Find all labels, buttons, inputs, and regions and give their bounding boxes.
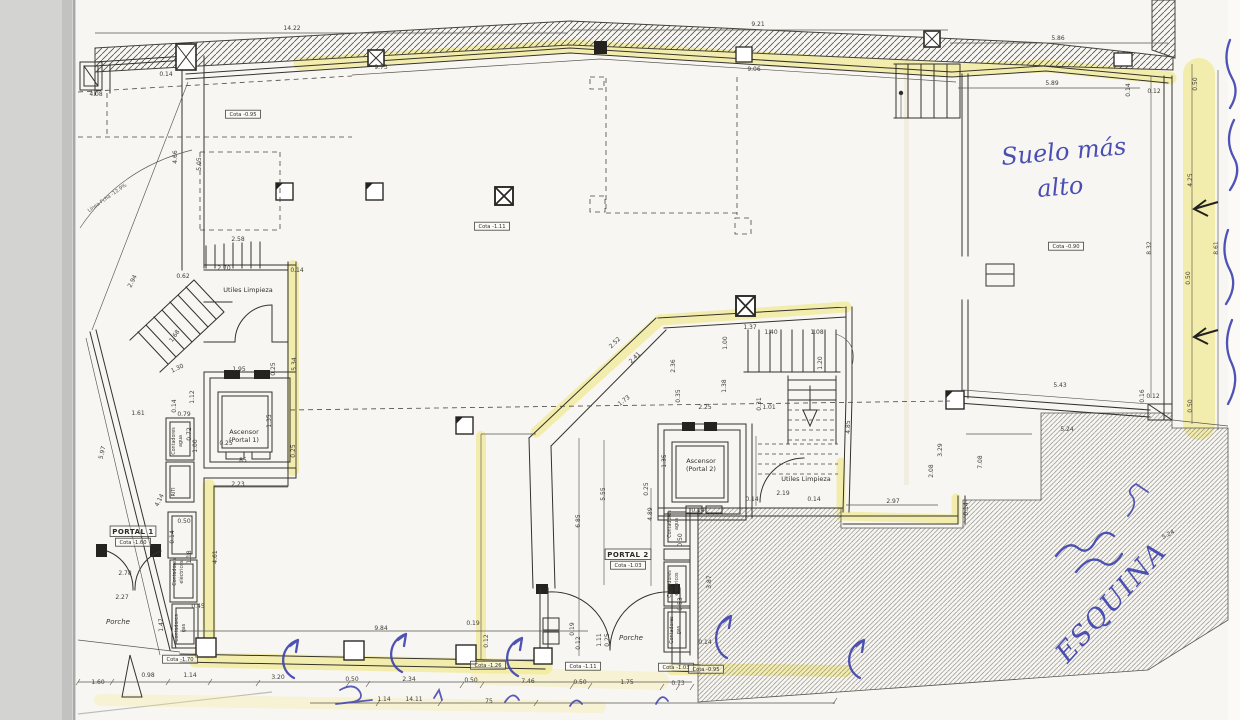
room-label: (Portal 1) bbox=[229, 436, 259, 444]
dimension-label: 0.25 bbox=[643, 482, 650, 496]
dimension-label: 4.08 bbox=[89, 91, 103, 98]
column-corner bbox=[456, 417, 473, 434]
closet-label: Contadores bbox=[667, 510, 673, 538]
dimension-label: 0.14 bbox=[963, 502, 970, 516]
dimension-label: 0.12 bbox=[575, 636, 582, 650]
dimension-label: 1.37 bbox=[743, 324, 757, 331]
dimension-label: 3.87 bbox=[706, 575, 713, 589]
dimension-label: 1.00 bbox=[192, 439, 199, 453]
dimension-label: 7.46 bbox=[521, 678, 535, 685]
dimension-label: 2.34 bbox=[402, 676, 416, 683]
column-x bbox=[736, 296, 755, 316]
cota-label: Cota -0.95 bbox=[229, 112, 256, 118]
dimension-label: 9.73 bbox=[374, 64, 388, 71]
closet-label: Contadores bbox=[171, 427, 177, 455]
column-corner bbox=[946, 391, 964, 409]
dimension-label: 0.53 bbox=[677, 597, 684, 611]
dimension-label: 1.38 bbox=[721, 379, 728, 393]
room-label: Ascensor bbox=[229, 428, 259, 436]
dimension-label: 0.16 bbox=[1139, 389, 1146, 403]
dimension-label: 9.21 bbox=[751, 21, 765, 28]
dimension-label: 0.35 bbox=[675, 389, 682, 403]
dimension-label: 1.40 bbox=[764, 329, 778, 336]
closet-label: eléctricos bbox=[673, 572, 680, 596]
closet-label: agua bbox=[179, 435, 184, 447]
dimension-label: 0.14 bbox=[807, 496, 821, 503]
dimension-label: 0.14 bbox=[159, 71, 173, 78]
dimension-label: 1.14 bbox=[377, 696, 391, 703]
dimension-label: 0.25 bbox=[290, 444, 297, 458]
dimension-label: 0.14 bbox=[691, 507, 705, 514]
cota-label: Cota -1.70 bbox=[166, 657, 193, 663]
room-label: Porche bbox=[619, 634, 643, 642]
cota-label: Cota -1.03 bbox=[662, 665, 689, 671]
closet-label: agua bbox=[675, 518, 680, 530]
dimension-label: 1.35 bbox=[266, 414, 273, 428]
column bbox=[1114, 53, 1132, 66]
dimension-label: 5.24 bbox=[1060, 426, 1074, 433]
dimension-label: 3.20 bbox=[271, 674, 285, 681]
column-x bbox=[176, 44, 196, 70]
cota-label: Cota -1.11 bbox=[569, 664, 596, 670]
room-label: Utiles Limpieza bbox=[223, 286, 272, 294]
dimension-label: 0.14 bbox=[290, 267, 304, 274]
dimension-label: 2.70 bbox=[217, 265, 231, 272]
floor-plan-svg: 14.229.215.860.144.089.739.065.890.500.1… bbox=[0, 0, 1240, 720]
dimension-label: 1.01 bbox=[762, 404, 776, 411]
dimension-label: 9.06 bbox=[747, 66, 761, 73]
dimension-label: 0.50 bbox=[345, 676, 359, 683]
closet-label: Contadores bbox=[669, 616, 675, 644]
dimension-label: 1.11 bbox=[596, 633, 603, 647]
dimension-label: 0.50 bbox=[464, 677, 478, 684]
column-solid bbox=[594, 41, 607, 54]
dimension-label: 1.75 bbox=[620, 679, 634, 686]
room-label: Ascensor bbox=[686, 457, 716, 465]
dimension-label: 0.12 bbox=[483, 634, 490, 648]
portal-label: PORTAL 1 bbox=[112, 528, 154, 536]
dimension-label: 1.14 bbox=[183, 672, 197, 679]
dimension-label: 2.97 bbox=[886, 498, 900, 505]
dimension-label: 5.43 bbox=[1053, 382, 1067, 389]
dimension-label: 0.98 bbox=[141, 672, 155, 679]
dimension-label: 8.32 bbox=[1146, 241, 1153, 255]
dimension-label: 1.60 bbox=[91, 679, 105, 686]
paper-crease bbox=[904, 55, 909, 485]
dimension-label: 5.86 bbox=[1051, 35, 1065, 42]
dimension-label: 0.12 bbox=[1146, 393, 1160, 400]
dimension-label: 75 bbox=[485, 698, 493, 705]
dimension-label: 0.14 bbox=[698, 639, 712, 646]
dimension-label: 0.50 bbox=[677, 533, 684, 547]
column-corner bbox=[276, 183, 293, 200]
dimension-label: 1.47 bbox=[158, 618, 165, 632]
dimension-label: 9.84 bbox=[374, 625, 388, 632]
column bbox=[534, 648, 552, 664]
room-label: Porche bbox=[106, 618, 130, 626]
column-corner bbox=[366, 183, 383, 200]
dimension-label: 0.79 bbox=[177, 411, 191, 418]
closet-label: eléctricos bbox=[178, 560, 185, 584]
dimension-label: 5.05 bbox=[196, 157, 203, 171]
dimension-label: 2.08 bbox=[928, 464, 935, 478]
cota-label: Cota -1.03 bbox=[614, 563, 641, 569]
dimension-label: 8.61 bbox=[1213, 241, 1220, 255]
dimension-label: 1.00 bbox=[722, 336, 729, 350]
dimension-label: 0.50 bbox=[1185, 271, 1192, 285]
handwritten-note-suelo-line2: alto bbox=[1036, 171, 1084, 203]
room-label: (Portal 2) bbox=[686, 465, 716, 473]
dimension-label: 0.62 bbox=[176, 273, 190, 280]
closet-label: gas bbox=[677, 625, 682, 634]
column bbox=[736, 47, 752, 62]
dimension-label: 85 bbox=[239, 457, 247, 464]
dimension-label: 1.61 bbox=[131, 410, 145, 417]
dimension-label: 0.50 bbox=[1192, 77, 1199, 91]
room-label: Utiles Limpieza bbox=[781, 475, 830, 483]
column-x bbox=[495, 187, 513, 205]
cota-label: Cota -1.11 bbox=[478, 224, 505, 230]
cota-label: Cota -1.26 bbox=[474, 663, 501, 669]
dimension-label: 1.12 bbox=[189, 390, 196, 404]
dimension-label: 0.50 bbox=[1187, 399, 1194, 413]
dimension-label: 6.85 bbox=[575, 514, 582, 528]
dimension-label: 1.18 bbox=[186, 550, 193, 564]
column-x bbox=[924, 31, 940, 47]
dimension-label: 5.55 bbox=[600, 487, 607, 501]
dimension-label: 1.08 bbox=[810, 329, 824, 336]
dimension-label: 4.66 bbox=[172, 150, 179, 164]
dimension-label: 0.19 bbox=[466, 620, 480, 627]
dimension-label: 5.89 bbox=[1045, 80, 1059, 87]
dimension-label: 7.08 bbox=[977, 455, 984, 469]
dimension-label: 4.61 bbox=[212, 550, 219, 564]
dimension-label: 2.19 bbox=[776, 490, 790, 497]
cota-label: Cota -0.90 bbox=[1052, 244, 1079, 250]
dimension-label: 1.35 bbox=[661, 454, 668, 468]
dimension-label: 14.11 bbox=[405, 696, 422, 703]
dimension-label: 4.89 bbox=[647, 507, 654, 521]
dimension-label: 0.14 bbox=[169, 530, 176, 544]
dimension-label: 0.14 bbox=[745, 496, 759, 503]
closet-label: Contadores bbox=[667, 570, 673, 598]
dimension-label: 0.25 bbox=[604, 633, 611, 647]
dimension-label: 2.27 bbox=[115, 594, 129, 601]
dimension-label: 14.22 bbox=[283, 25, 300, 32]
closet-label: Contadores bbox=[172, 558, 178, 586]
closet-label: RITI bbox=[171, 487, 177, 496]
dimension-label: 2.58 bbox=[231, 236, 245, 243]
dimension-label: 2.23 bbox=[231, 481, 245, 488]
dimension-label: 5.34 bbox=[291, 357, 298, 371]
dimension-label: 0.73 bbox=[671, 680, 685, 687]
dimension-label: 0.14 bbox=[1125, 83, 1132, 97]
scanned-floor-plan: 14.229.215.860.144.089.739.065.890.500.1… bbox=[0, 0, 1240, 720]
dimension-label: 4.85 bbox=[845, 420, 852, 434]
dimension-label: 0.12 bbox=[1147, 88, 1161, 95]
dimension-label: 0.25 bbox=[270, 362, 277, 376]
portal-label: PORTAL 2 bbox=[607, 551, 649, 559]
dimension-label: 2.36 bbox=[670, 359, 677, 373]
closet-label: Contadores bbox=[174, 614, 180, 642]
dimension-label: 0.19 bbox=[569, 622, 576, 636]
dimension-label: 2.78 bbox=[118, 570, 132, 577]
column bbox=[196, 638, 216, 657]
closet-label: gas bbox=[182, 623, 187, 632]
dimension-label: 1.95 bbox=[232, 366, 246, 373]
dimension-label: 2.25 bbox=[698, 404, 712, 411]
dimension-label: 4.25 bbox=[1187, 173, 1194, 187]
cota-label: Cota -1.60 bbox=[119, 540, 146, 546]
dimension-label: 0.50 bbox=[573, 679, 587, 686]
dimension-label: 0.45 bbox=[191, 603, 205, 610]
dimension-label: 3.29 bbox=[937, 443, 944, 457]
dimension-label: 0.50 bbox=[177, 518, 191, 525]
cota-label: Cota -0.95 bbox=[692, 667, 719, 673]
dimension-label: 0.72 bbox=[186, 427, 193, 441]
dimension-label: 1.20 bbox=[817, 356, 824, 370]
column bbox=[344, 641, 364, 660]
